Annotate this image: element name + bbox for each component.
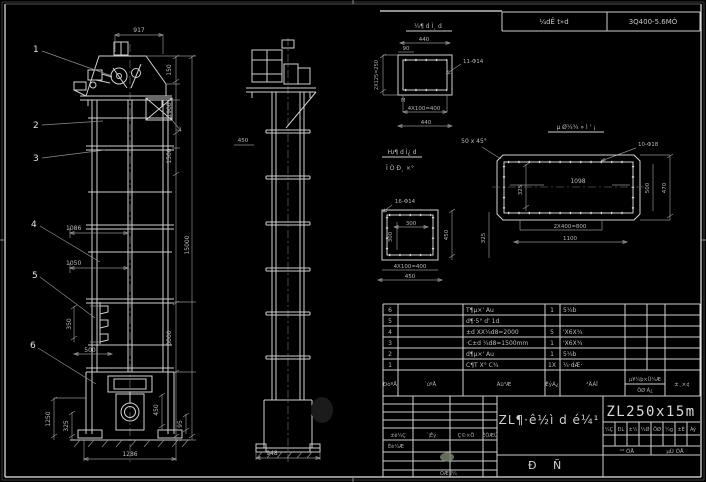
dim-2x125: 2X125=250 — [374, 60, 380, 90]
rev-header-count: ´¦Êý — [426, 431, 436, 439]
header-band: ¼dÊ t»d 3Q400-5.6MÓ — [502, 12, 700, 31]
side-view-dimensions: 450 948 — [234, 138, 320, 460]
dim-450: 450 — [153, 404, 160, 416]
dim-1098: 1098 — [570, 178, 585, 185]
title-block: ±ê¼Ç ´¦Êý Ç©×Ö ÈÕÆÚ Éè¼Æ ÖÆ Í¼ ZL¶·ê½ì d… — [383, 396, 700, 477]
side-view: 450 948 — [234, 38, 333, 462]
dim-325: 325 — [63, 420, 70, 432]
revision-grid: ±ê¼Ç ´¦Êý Ç©×Ö ÈÕÆÚ Éè¼Æ ÖÆ Í¼ — [383, 396, 498, 477]
dim-325-mid: 325 — [481, 232, 487, 243]
balloon-4: 4 — [31, 220, 37, 230]
dim-1286: 1286 — [122, 451, 137, 458]
bom-cell: d¶µ×' Au — [466, 351, 494, 358]
dim-300h: 300 — [406, 221, 417, 227]
approval-stamp — [440, 453, 454, 462]
detail-flange-plate: ¼¶ d Ì¸ d 440 90 11-Φ14 2X125=250 M 4X10… — [374, 23, 484, 128]
model-cell-3: ¼Ø — [641, 426, 650, 433]
detail-base-title: µ Ø¼¾ » ì ' ¡ — [556, 124, 595, 131]
balloon-5: 5 — [32, 271, 38, 281]
dim-1250: 1250 — [45, 411, 52, 426]
band-right-label: 3Q400-5.6MÓ — [629, 17, 678, 26]
dim-150: 150 — [166, 64, 173, 76]
detail-square-title-top: Ƕ¶ d Ì¿ d — [388, 149, 417, 156]
dim-1050: 1050 — [66, 260, 81, 267]
bom-cell: 5 — [550, 329, 554, 336]
bom-cell: 5¼b — [563, 351, 577, 358]
dim-1500: 1500 — [166, 148, 173, 163]
dim-500-right: 500 — [645, 182, 651, 193]
dim-450-square: 450 — [405, 274, 416, 280]
balloon-1: 1 — [33, 45, 39, 55]
bom-rows: 6 T¶µ×' Au 1 5¼b 5 d¶·5° d' 1d 4 ±d XX¼d… — [388, 307, 583, 369]
model-number: ZL250x15m — [606, 404, 695, 420]
dim-450-side: 450 — [238, 138, 249, 144]
detail-flange-title: ¼¶ d Ì¸ d — [414, 23, 442, 30]
bom-cell: d¶·5° d' 1d — [466, 318, 499, 325]
bom-cell: 1 — [550, 351, 554, 358]
drawing-title: ZL¶·ê½ì d é¼¹ — [499, 413, 600, 427]
model-grid: ZL250x15m ¼Ç ÐL ±¼ ¼Ø ÖØ ¼g ±È Àý ¹² ÕÅ … — [603, 404, 700, 455]
bom-header-mat: ²ÄÁÏ — [586, 381, 598, 388]
smudge-mark — [311, 397, 333, 423]
dim-1086: 1086 — [66, 225, 81, 232]
dim-450-right: 450 — [444, 229, 450, 240]
chamfer-note: 50 x 45° — [461, 138, 501, 159]
bom-cell: 5 — [388, 318, 392, 325]
bom-cell: 2 — [388, 351, 392, 358]
dim-1100: 1100 — [563, 236, 577, 242]
rev-header-sign: Ç©×Ö — [458, 432, 475, 439]
bom-cell: ¼·dÆ· — [563, 362, 582, 369]
rev-header-date: ÈÕÆÚ — [482, 431, 498, 439]
bom-header-code: ´úºÅ — [424, 381, 437, 388]
sheet-frame: ¼dÊ t»d 3Q400-5.6MÓ — [0, 0, 706, 482]
bom-cell: 3 — [388, 340, 392, 347]
bom-cell: T¶µ×' Au — [465, 307, 494, 314]
bom-table: 6 T¶µ×' Au 1 5¼b 5 d¶·5° d' 1d 4 ±d XX¼d… — [383, 304, 700, 396]
model-cell-5: ¼g — [665, 427, 673, 433]
row-label-draw: ÖÆ Í¼ — [440, 470, 457, 477]
dim-2x400: 2X400=800 — [554, 224, 587, 230]
dim-4x100: 4X100=400 — [408, 106, 441, 112]
bom-header-weight-bottom: ÖØ Á¿ — [637, 387, 653, 394]
drawing-title-cell: ZL¶·ê½ì d é¼¹ Ð Ñ — [497, 413, 603, 472]
dim-300v: 300 — [388, 231, 394, 242]
bom-cell: 'X6X¾ — [563, 329, 583, 336]
balloon-2: 2 — [33, 121, 39, 131]
detail-square-title-bottom: Î Ò Ð¸ ×° — [386, 165, 414, 172]
dim-325-inner: 325 — [518, 184, 524, 195]
bom-header: ÐòºÅ ´úºÅ Ãû³Æ ÊýÁ¿ ²ÄÁÏ µ¥¼þ×Ü¼Æ ÖØ Á¿ … — [383, 376, 690, 394]
bom-cell: 1 — [388, 362, 392, 369]
bom-cell: 4 — [388, 329, 392, 336]
dim-3000: 3000 — [166, 330, 173, 345]
bom-cell: 'X6X¾ — [563, 340, 583, 347]
model-cell-0: ¼Ç — [605, 427, 614, 433]
drawing-canvas: ¼dÊ t»d 3Q400-5.6MÓ — [0, 0, 706, 482]
model-cell-1: ÐL — [618, 427, 625, 433]
model-cell-2: ±¼ — [628, 427, 637, 433]
detail-base-plate: µ Ø¼¾ » ì ' ¡ 10-Φ18 1098 325 2X400=800 … — [492, 124, 673, 244]
bom-header-qty: ÊýÁ¿ — [545, 380, 558, 388]
bom-header-no: ÐòºÅ — [383, 381, 397, 388]
title-char-1: Ð — [528, 459, 537, 472]
dim-350: 350 — [66, 318, 73, 330]
bom-header-name: Ãû³Æ — [497, 381, 512, 388]
bom-header-weight-top: µ¥¼þ×Ü¼Æ — [629, 376, 661, 383]
holes-16-phi14: 16-Φ14 — [395, 199, 416, 205]
dim-4x100-square: 4X100=400 — [394, 264, 427, 270]
bom-cell: 1X — [548, 362, 556, 369]
holes-10-phi18: 10-Φ18 — [638, 142, 659, 148]
detail-square-flange: Ƕ¶ d Ì¿ d Î Ò Ð¸ ×° 16-Φ14 300 300 4X100… — [378, 149, 489, 282]
dim-440-top: 440 — [419, 37, 430, 43]
balloon-6: 6 — [30, 341, 36, 351]
model-cell-4: ÖØ — [653, 426, 661, 433]
bom-cell: 5¼b — [563, 307, 577, 314]
title-char-2: Ñ — [553, 459, 561, 472]
dim-15000: 15000 — [184, 235, 191, 254]
bom-cell: ·C±d ¼d8=1500mm — [466, 340, 528, 347]
row-label-design: Éè¼Æ — [388, 442, 404, 450]
front-view: 1 2 3 4 5 6 917 150 1900 1500 3000 15000 — [30, 27, 196, 462]
model-cell-7: Àý — [690, 426, 696, 433]
balloon-3: 3 — [33, 154, 39, 164]
dim-1900: 1900 — [166, 102, 173, 117]
note-50x45: 50 x 45° — [461, 138, 487, 145]
dim-95: 95 — [177, 420, 184, 428]
dim-440-bottom: 440 — [421, 120, 432, 126]
dim-948: 948 — [266, 450, 278, 457]
sheet-total: ¹² ÕÅ — [620, 448, 634, 455]
bom-cell: 1 — [550, 340, 554, 347]
dim-90: 90 — [403, 46, 410, 52]
bom-cell: ±d XX¼d8=2000 — [466, 329, 519, 336]
front-view-dimensions: 917 150 1900 1500 3000 15000 1086 1050 3… — [45, 27, 196, 461]
model-cell-6: ±È — [677, 425, 684, 433]
dim-470-right: 470 — [662, 182, 668, 193]
bom-cell: C¶T X° C¾ — [466, 362, 499, 369]
rev-header-mark: ±ê¼Ç — [390, 432, 406, 439]
bom-header-note: ±¸×¢ — [674, 382, 689, 388]
band-left-label: ¼dÊ t»d — [539, 17, 568, 26]
bom-cell: 1 — [550, 307, 554, 314]
sheet-number: µÚ ÕÅ — [666, 448, 684, 455]
dim-500: 500 — [84, 347, 96, 354]
bom-cell: 6 — [388, 307, 392, 314]
dim-917: 917 — [133, 27, 145, 34]
cad-drawing-sheet: ¼dÊ t»d 3Q400-5.6MÓ — [0, 0, 706, 482]
holes-11-phi14: 11-Φ14 — [463, 59, 484, 65]
